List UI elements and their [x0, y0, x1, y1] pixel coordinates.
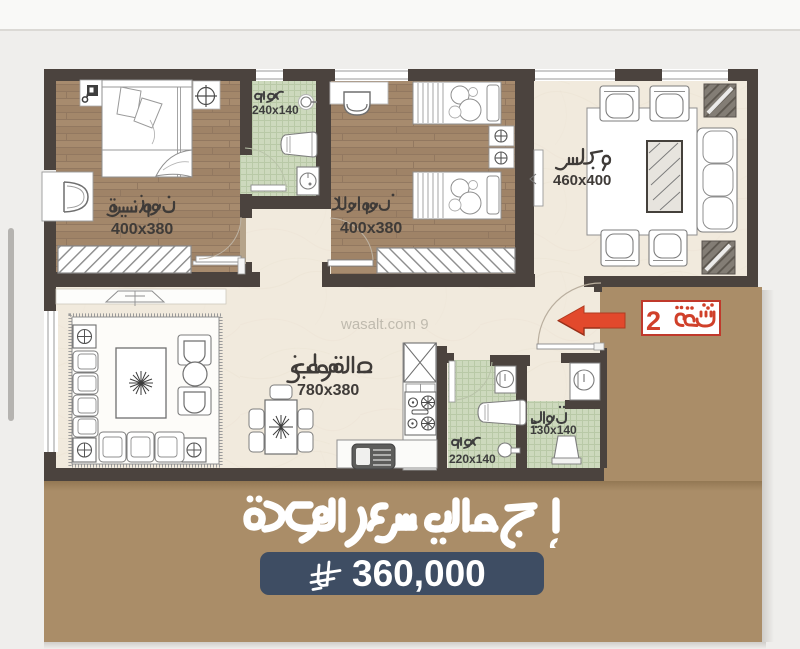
- svg-text:2: 2: [646, 306, 661, 336]
- svg-text:460x400: 460x400: [553, 172, 611, 189]
- svg-text:780x380: 780x380: [297, 382, 359, 399]
- svg-text:400x380: 400x380: [111, 221, 173, 238]
- svg-text:wasalt.com 9: wasalt.com 9: [340, 316, 429, 333]
- svg-text:240x140: 240x140: [252, 103, 299, 117]
- svg-text:220x140: 220x140: [449, 452, 496, 466]
- svg-text:360,000: 360,000: [352, 553, 486, 594]
- svg-text:400x380: 400x380: [340, 220, 402, 237]
- svg-text:130x140: 130x140: [530, 423, 577, 437]
